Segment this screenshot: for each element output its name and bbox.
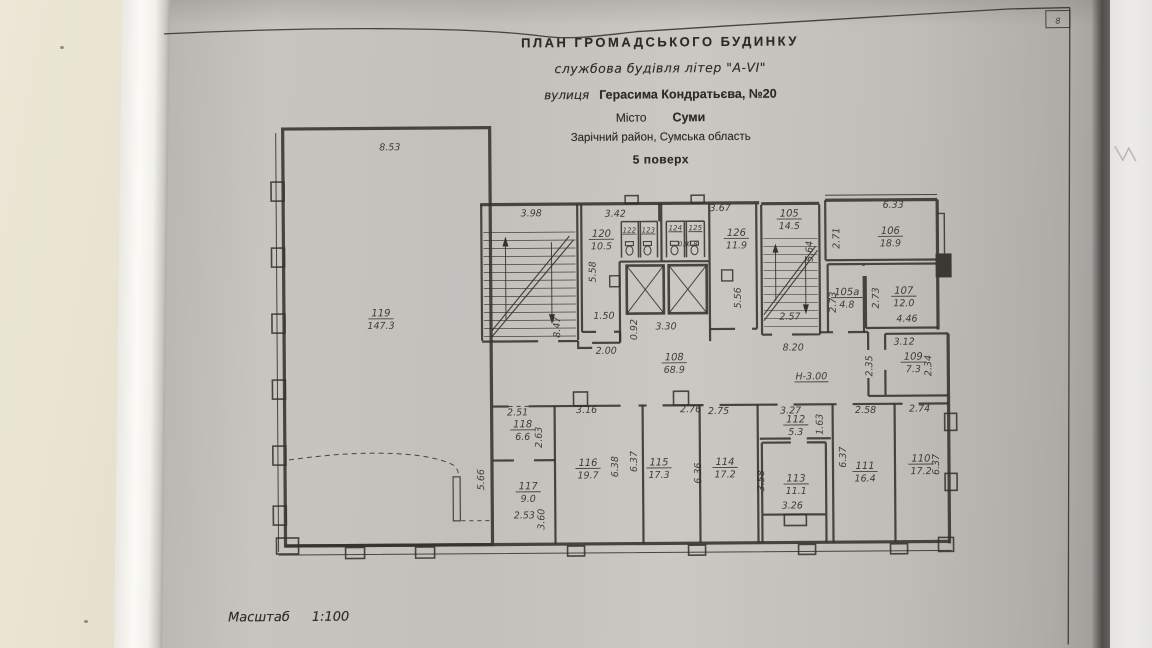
scribble-mark [1115,146,1136,161]
photo-of-floor-plan: ПЛАН ГРОМАДСЬКОГО БУДИНКУ службова будів… [0,0,1152,648]
background-marks [0,0,1152,648]
document-content: ПЛАН ГРОМАДСЬКОГО БУДИНКУ службова будів… [0,0,1152,648]
